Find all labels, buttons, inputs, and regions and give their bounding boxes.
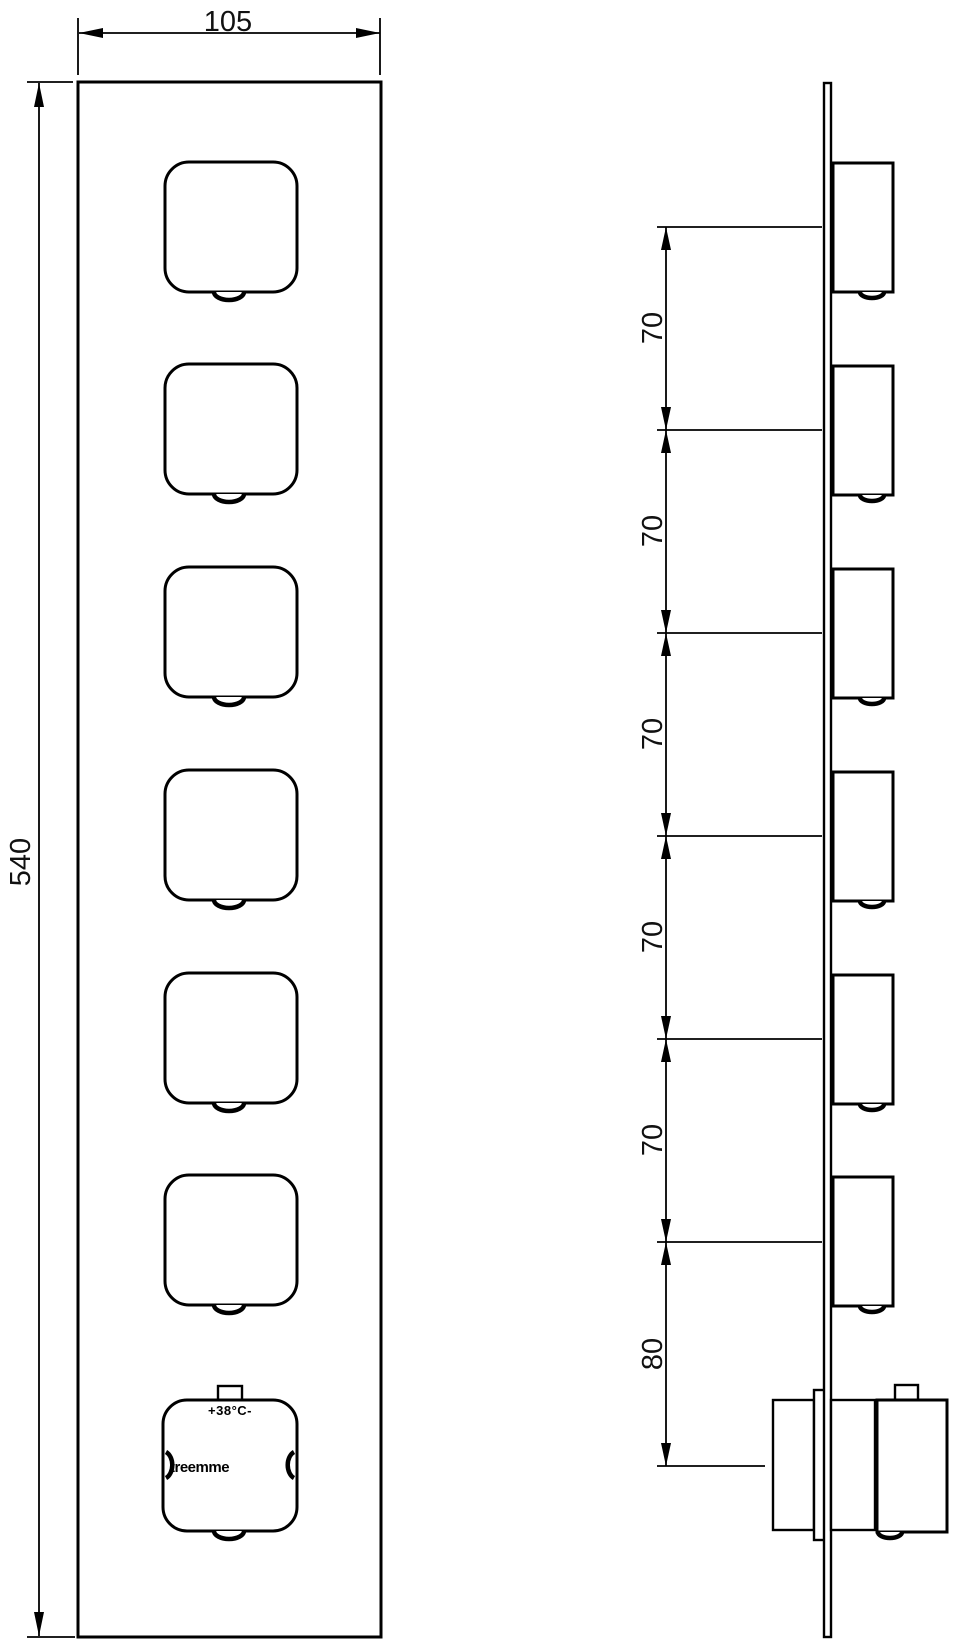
side-knob-outline: [833, 366, 893, 495]
side-knob-outline: [833, 1177, 893, 1306]
knob-bottom-notch: [860, 1104, 884, 1110]
arrowhead-down: [661, 407, 671, 430]
front-knob-outline: [165, 770, 297, 900]
brand-logo-text: treemme: [170, 1459, 229, 1476]
side-knob-6: [833, 1177, 893, 1312]
knob-bottom-notch: [214, 1531, 244, 1539]
side-knob-4: [833, 772, 893, 907]
side-valve-body: [773, 1400, 814, 1530]
spacing-dim-label-3: 70: [637, 718, 669, 750]
arrowhead-down: [661, 610, 671, 633]
front-knob-outline: [165, 364, 297, 494]
arrowhead-up: [661, 836, 671, 859]
arrowhead-left: [79, 28, 103, 38]
arrowhead-top: [34, 83, 44, 107]
arrowhead-down: [661, 813, 671, 836]
front-knob-1: [165, 162, 297, 300]
knob-bottom-notch: [860, 495, 884, 501]
height-dim-label: 540: [5, 838, 37, 886]
thermostat-right-notch: [288, 1452, 294, 1478]
arrowhead-down: [661, 1219, 671, 1242]
knob-bottom-notch: [860, 698, 884, 704]
thermostat-sleeve: [831, 1400, 875, 1530]
arrowhead-down: [661, 1016, 671, 1039]
front-knob-outline: [165, 973, 297, 1103]
spacing-dim-label-5: 70: [637, 1124, 669, 1156]
spacing-dim-label-1: 70: [637, 312, 669, 344]
front-knob-outline: [165, 162, 297, 292]
side-knob-outline: [833, 975, 893, 1104]
front-view: +38°C- treemme 105 540: [5, 6, 381, 1637]
arrowhead-down: [661, 1443, 671, 1466]
knob-bottom-notch: [214, 1305, 244, 1313]
side-knob-outline: [833, 163, 893, 292]
spacing-dim-label-6: 80: [637, 1338, 669, 1370]
side-knob-outline: [833, 772, 893, 901]
width-dimension: 105: [78, 6, 380, 75]
arrowhead-up: [661, 1039, 671, 1062]
side-thermostat-knob: [831, 1385, 947, 1538]
thermostat-knob-outline: [877, 1400, 947, 1532]
valve-trim-drawing: +38°C- treemme 105 540: [0, 0, 964, 1650]
knob-bottom-notch: [214, 1103, 244, 1111]
height-dimension: 540: [5, 82, 75, 1637]
knob-bottom-notch: [860, 901, 884, 907]
knob-bottom-notch: [214, 697, 244, 705]
spacing-dimension-chain: 70 70 70 70 70 80: [637, 227, 822, 1466]
width-dim-label: 105: [204, 6, 252, 38]
front-knob-outline: [165, 1175, 297, 1305]
arrowhead-bottom: [34, 1612, 44, 1636]
side-knob-2: [833, 366, 893, 501]
front-knob-3: [165, 567, 297, 705]
arrowhead-up: [661, 227, 671, 250]
arrowhead-up: [661, 430, 671, 453]
arrowhead-up: [661, 633, 671, 656]
knob-bottom-notch: [878, 1532, 902, 1538]
knob-bottom-notch: [860, 1306, 884, 1312]
front-knob-5: [165, 973, 297, 1111]
side-view: 70 70 70 70 70 80: [637, 83, 947, 1637]
thermostat-temperature-label: +38°C-: [208, 1403, 252, 1418]
spacing-dim-label-4: 70: [637, 921, 669, 953]
front-knob-6: [165, 1175, 297, 1313]
technical-drawing-page: +38°C- treemme 105 540: [0, 0, 964, 1650]
arrowhead-up: [661, 1242, 671, 1265]
thermostat-top-tab: [895, 1385, 918, 1400]
front-thermostat-knob: +38°C- treemme: [163, 1386, 297, 1539]
knob-bottom-notch: [214, 494, 244, 502]
front-knob-2: [165, 364, 297, 502]
spacing-dim-label-2: 70: [637, 515, 669, 547]
side-knob-3: [833, 569, 893, 704]
front-knob-outline: [165, 567, 297, 697]
arrowhead-right: [356, 28, 380, 38]
side-knob-outline: [833, 569, 893, 698]
front-knob-4: [165, 770, 297, 908]
knob-bottom-notch: [860, 292, 884, 298]
side-knob-1: [833, 163, 893, 298]
side-knob-5: [833, 975, 893, 1110]
knob-bottom-notch: [214, 292, 244, 300]
knob-bottom-notch: [214, 900, 244, 908]
